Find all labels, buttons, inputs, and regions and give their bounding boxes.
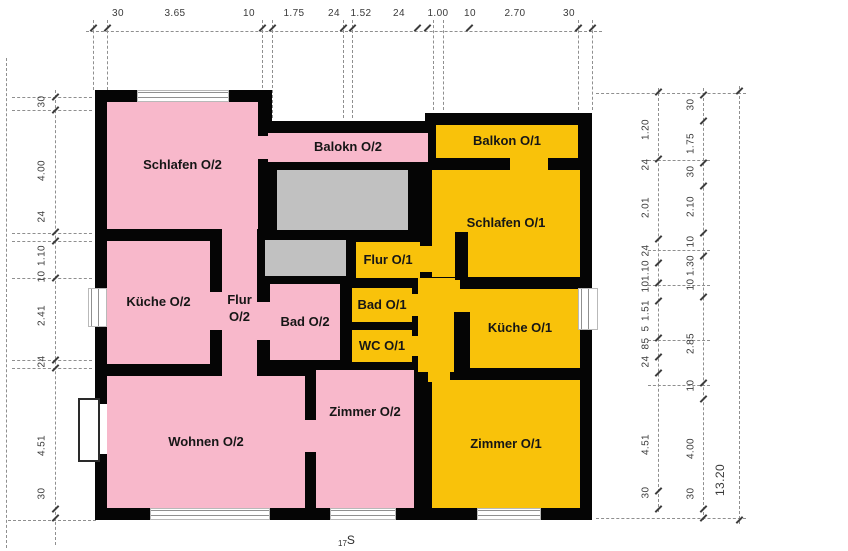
dim-label: 4.00 xyxy=(37,151,48,191)
dim-label: 2.01 xyxy=(641,188,652,228)
room-flur-o2: Flur O/2 xyxy=(222,233,257,384)
window xyxy=(477,508,541,520)
dim-label: 30 xyxy=(563,8,575,19)
door-opening xyxy=(206,292,224,330)
room-balkon-o2: Balokn O/2 xyxy=(268,133,428,162)
dimension-line-far-left xyxy=(6,58,7,548)
dim-label: 4.00 xyxy=(686,429,697,469)
door-opening xyxy=(222,222,257,236)
window xyxy=(150,508,270,520)
dimension-line-right-total xyxy=(739,86,740,524)
extension-line xyxy=(272,20,273,118)
door-opening xyxy=(410,336,420,356)
floor-plan: 30 3.65 10 1.75 24 1.52 24 1.00 10 2.70 … xyxy=(0,0,848,551)
door-opening xyxy=(252,136,272,159)
dim-label: 10 xyxy=(686,366,697,406)
dim-label: 24 xyxy=(393,8,405,19)
dim-label: 1.20 xyxy=(641,110,652,150)
dim-label: 1.52 xyxy=(350,8,371,19)
dimension-line-right-outer xyxy=(703,88,704,520)
dim-label: 1.00 xyxy=(427,8,448,19)
interior-wall xyxy=(455,232,468,280)
room-schlafen-o2: Schlafen O/2 xyxy=(107,102,258,229)
room-label: Flur O/2 xyxy=(222,292,257,326)
room-zimmer-o1: Zimmer O/1 xyxy=(432,380,580,508)
extension-line xyxy=(343,20,344,118)
room-label: Flur O/1 xyxy=(363,252,412,269)
dim-label: 10 xyxy=(464,8,476,19)
interior-wall xyxy=(454,312,470,372)
dimension-line-top xyxy=(86,31,602,32)
extension-line xyxy=(352,20,353,118)
extension-line xyxy=(648,250,710,251)
room-label: Balkon O/1 xyxy=(473,133,541,150)
dim-label: 24 xyxy=(641,342,652,382)
room-balkon-o1: Balkon O/1 xyxy=(436,125,578,158)
door-opening xyxy=(410,294,420,316)
dim-label: 2.70 xyxy=(504,8,525,19)
room-label: Schlafen O/1 xyxy=(467,215,546,232)
dim-label: 4.51 xyxy=(37,426,48,466)
window xyxy=(330,508,396,520)
dim-label: 2.85 xyxy=(686,324,697,364)
extension-line xyxy=(93,20,94,90)
room-label: Schlafen O/2 xyxy=(143,157,222,174)
room-kueche-o2: Küche O/2 xyxy=(107,241,210,364)
room-label: Zimmer O/2 xyxy=(329,404,401,421)
extension-line xyxy=(107,20,108,90)
dim-label: 30 xyxy=(686,85,697,125)
dim-label: 30 xyxy=(37,82,48,122)
room-bad-o1: Bad O/1 xyxy=(352,288,412,322)
dim-label: 24 xyxy=(37,342,48,382)
dim-label: 3.65 xyxy=(164,8,185,19)
dim-label-total: 13.20 xyxy=(713,460,727,500)
dim-label: 4.51 xyxy=(641,425,652,465)
window xyxy=(88,288,107,327)
extension-line xyxy=(596,93,746,94)
extension-line xyxy=(433,20,434,110)
door-opening xyxy=(428,366,450,382)
window xyxy=(578,288,598,330)
door-opening xyxy=(416,246,434,272)
room-bad-o2: Bad O/2 xyxy=(270,284,340,360)
window xyxy=(137,90,229,102)
dim-label: 2.10 xyxy=(686,187,697,227)
dim-label: 30 xyxy=(686,474,697,514)
stairwell-lower xyxy=(265,240,346,276)
dim-label: 1.75 xyxy=(283,8,304,19)
room-label: Bad O/1 xyxy=(357,297,406,314)
door-opening xyxy=(510,155,548,172)
room-kueche-o1: Küche O/1 xyxy=(460,289,580,368)
dim-label: 30 xyxy=(641,473,652,513)
extension-line xyxy=(592,20,593,110)
room-label: Bad O/2 xyxy=(280,314,329,331)
room-label: WC O/1 xyxy=(359,338,405,355)
dim-label: 30 xyxy=(112,8,124,19)
room-zimmer-o2: Zimmer O/2 xyxy=(316,370,414,508)
extension-line xyxy=(578,20,579,110)
extension-line xyxy=(596,518,746,519)
extension-line xyxy=(443,20,444,110)
dim-label: 24 xyxy=(37,197,48,237)
room-label: Balokn O/2 xyxy=(314,139,382,156)
dimension-line-left xyxy=(55,90,56,545)
dim-label: 10 xyxy=(243,8,255,19)
room-label: Küche O/1 xyxy=(488,320,552,337)
room-flur-o1: Flur O/1 xyxy=(356,242,420,278)
dim-label: 2.41 xyxy=(37,296,48,336)
room-label: Wohnen O/2 xyxy=(168,434,244,451)
dim-label: 30 xyxy=(37,474,48,514)
door-opening xyxy=(255,302,272,340)
room-label: Zimmer O/1 xyxy=(470,436,542,453)
door-opening xyxy=(303,420,318,452)
room-wohnen-o2: Wohnen O/2 xyxy=(107,376,305,508)
dim-label: 10 xyxy=(686,265,697,305)
scan-mark: 17S xyxy=(338,533,355,548)
dim-label: 24 xyxy=(641,145,652,185)
stairwell-upper xyxy=(277,170,408,230)
dim-label: 24 xyxy=(328,8,340,19)
room-label: Küche O/2 xyxy=(126,294,190,311)
scan-mark-letter: S xyxy=(347,533,355,547)
dim-label: 10 xyxy=(37,257,48,297)
scan-mark-prefix: 17 xyxy=(338,539,347,548)
bay-window xyxy=(78,398,100,462)
room-wc-o1: WC O/1 xyxy=(352,330,412,362)
dim-label: 30 xyxy=(686,152,697,192)
